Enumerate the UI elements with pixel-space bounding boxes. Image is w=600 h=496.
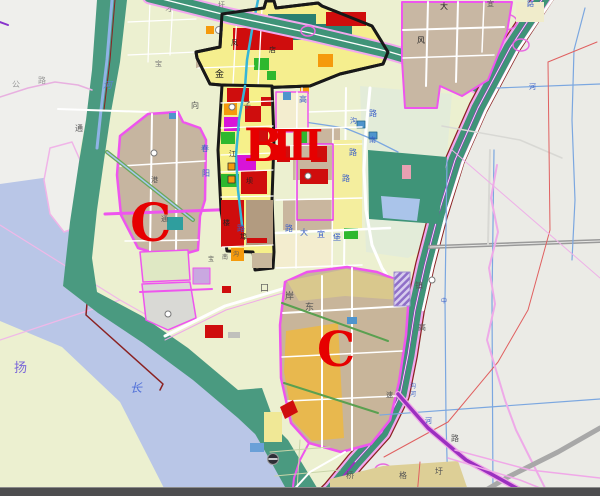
map-label: 圩 <box>218 1 225 9</box>
map-label: 沟 <box>350 116 357 125</box>
map-label: 扬 <box>14 361 27 376</box>
block-b-red1 <box>227 88 249 102</box>
block-iii-green1 <box>296 130 307 143</box>
map-label: 公 <box>12 80 20 89</box>
map-label: 路 <box>342 173 350 183</box>
map-label: 口 <box>260 284 269 294</box>
map-label: 路 <box>349 147 357 157</box>
map-label: 圩 <box>435 467 443 476</box>
block-orange-t1 <box>206 26 214 34</box>
zone-iii-yellow <box>333 140 362 230</box>
map-label: 桥 <box>346 470 354 480</box>
map-label: 金 <box>215 68 224 80</box>
map-label: 高 <box>418 322 426 332</box>
landmark-sw <box>165 311 171 317</box>
zone-iii-cream2 <box>276 235 332 268</box>
map-label: 东 <box>305 301 314 313</box>
map-label: 通 <box>161 214 168 223</box>
map-label: 中 <box>441 297 447 305</box>
block-red-sw2 <box>205 325 223 338</box>
pond-cw <box>167 217 183 230</box>
map-label: 河 <box>529 83 536 91</box>
landmark-band <box>429 277 435 283</box>
map-label: 路 <box>285 223 293 233</box>
pond-cs <box>347 317 357 324</box>
icon-orange-b1 <box>228 163 235 170</box>
map-label: 路 <box>237 223 245 233</box>
window-edge-bar <box>0 488 600 496</box>
icon-orange-b2 <box>228 176 235 183</box>
map-label: 高 <box>299 94 307 104</box>
block-green-t2 <box>267 71 276 80</box>
map-label: 沟 <box>233 250 239 258</box>
block-b-magenta2 <box>237 155 256 171</box>
block-iii-red3 <box>300 169 328 184</box>
map-label: 沟 <box>410 382 416 390</box>
map-label: 楼 <box>223 218 230 227</box>
road-cw-h2 <box>125 240 198 241</box>
block-iii-blue <box>283 92 291 100</box>
block-b-tan2 <box>252 253 272 268</box>
map-label: 堡 <box>333 232 341 242</box>
map-label: 路 <box>451 433 459 443</box>
block-b-red4 <box>252 128 268 145</box>
map-label: 镇 <box>415 280 423 290</box>
map-canvas[interactable]: 扬长河公路通宝刁圩凤店金向子高路沟南路路春阳港通江坝路楼埠南沟宝路大宜堡口岸东镇… <box>0 0 600 496</box>
map-label: 通 <box>75 123 83 133</box>
map-label: 路 <box>369 108 377 118</box>
map-label: 宝 <box>208 255 214 263</box>
block-b-redbar <box>247 238 267 243</box>
map-label: 大 <box>440 1 448 11</box>
map-label: 宜 <box>487 0 494 8</box>
landmark-cw <box>151 150 157 156</box>
block-orange-t2 <box>318 54 333 67</box>
zone-hatched <box>394 272 410 306</box>
pond-cw2 <box>169 113 176 119</box>
map-label: 江 <box>229 150 236 158</box>
map-label: 速 <box>386 391 393 399</box>
planning-map-viewport: 扬长河公路通宝刁圩凤店金向子高路沟南路路春阳港通江坝路楼埠南沟宝路大宜堡口岸东镇… <box>0 0 600 496</box>
map-label: 南 <box>222 253 228 261</box>
landmark-iii <box>305 173 311 179</box>
map-label: 路 <box>38 75 46 85</box>
park-lake <box>381 196 420 221</box>
zone-sw-green <box>140 250 190 282</box>
map-label: 子 <box>243 101 251 110</box>
map-label: 风 <box>417 36 425 45</box>
block-red-sw1 <box>222 286 231 293</box>
zone-sw-purple <box>193 268 210 284</box>
map-label: 春 <box>201 143 209 153</box>
block-gray-sw <box>228 332 240 338</box>
map-label: 格 <box>399 470 407 480</box>
map-label: 店 <box>269 45 276 54</box>
block-iii-red2 <box>311 146 327 162</box>
map-label: 向 <box>191 100 199 110</box>
park-building <box>402 165 411 179</box>
map-label: 路 <box>527 0 534 8</box>
block-b-red5 <box>241 171 267 194</box>
map-label: 南 <box>369 135 376 144</box>
map-label: 宝 <box>155 59 162 68</box>
map-label: 埠 <box>240 232 247 241</box>
road-cw-v2 <box>176 112 177 254</box>
map-label: 凤 <box>231 39 238 47</box>
map-label: 港 <box>151 175 158 184</box>
block-iii-red1 <box>277 145 290 162</box>
block-yellow-s <box>264 412 282 442</box>
map-label: 刁 <box>165 5 172 13</box>
map-label: 长 <box>130 381 143 395</box>
block-b-green1 <box>221 132 235 144</box>
map-label: 宜 <box>317 229 325 239</box>
block-green-t1 <box>254 58 269 70</box>
map-label: 坝 <box>246 176 253 185</box>
landmark-b1 <box>229 104 235 110</box>
map-label: 岸 <box>285 291 294 302</box>
map-label: 河 <box>410 390 416 398</box>
map-label: 阳 <box>202 169 210 178</box>
map-label: 河 <box>425 417 432 425</box>
pond-s <box>250 443 264 452</box>
map-label: 大 <box>300 227 308 237</box>
